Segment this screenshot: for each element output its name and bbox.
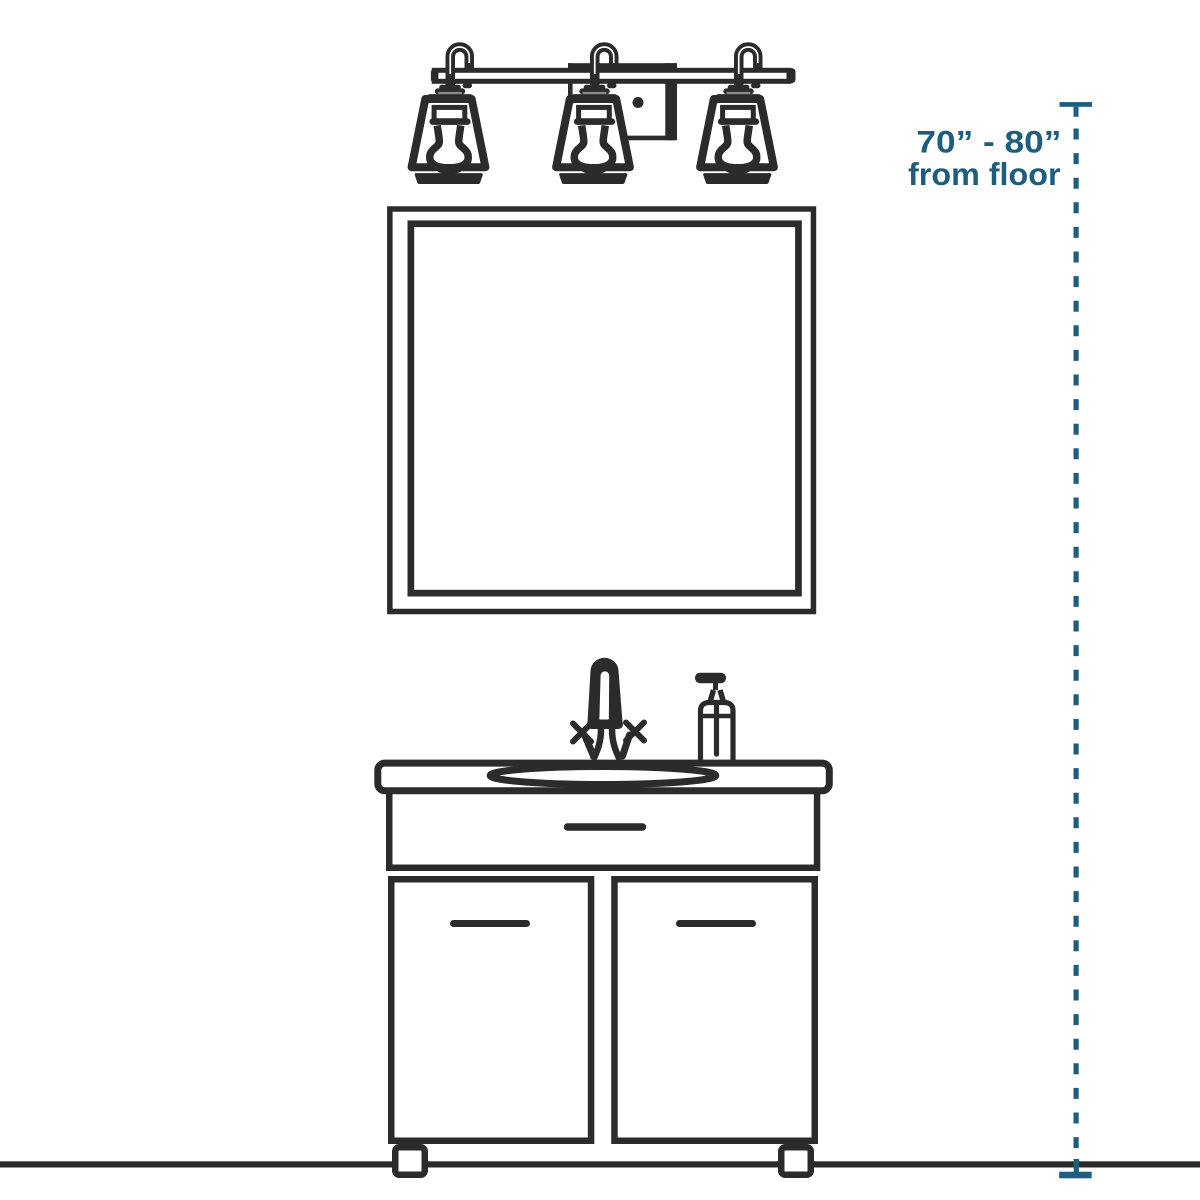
svg-text:from floor: from floor xyxy=(908,156,1061,192)
svg-text:70” - 80”: 70” - 80” xyxy=(916,123,1061,159)
